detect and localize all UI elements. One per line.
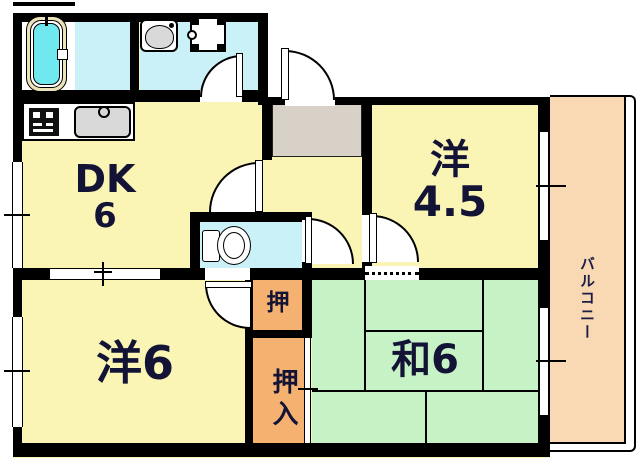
washing-machine-icon [190,17,226,52]
window-tick [536,185,566,187]
western6-opening [205,268,250,280]
entrance-door-leaf [281,48,289,100]
wall-segment [302,280,312,338]
bathtub-icon [26,16,67,92]
sliding-door-tick [94,271,112,273]
closet-fusuma [304,338,311,443]
washroom-door-leaf [236,53,243,97]
kitchen-counter [22,102,135,141]
western6-door-leaf [205,281,252,288]
hall-japanese6-opening-dots [365,272,419,275]
toilet-door-leaf [305,216,312,264]
tatami-line [425,392,427,443]
wall-segment [130,22,139,97]
wall-segment [190,212,312,222]
window-tick [4,214,30,216]
sliding-door-tick [102,262,104,286]
kitchen-sink-icon [74,106,131,138]
window-tick [4,370,30,372]
japanese6-label: 和6 [380,340,470,381]
dk-western6-sliding-door [50,268,160,280]
western45-door-leaf [369,213,377,263]
genkan-entrance [272,103,362,157]
floor-plan: バルコニー [0,0,640,460]
wall-segment [258,13,268,105]
bathtub-handle [57,49,68,60]
tatami-line [364,330,484,332]
tatami-line [482,280,484,392]
toilet-icon [202,226,252,264]
western6-label: 洋6 [70,340,200,387]
wall-segment [13,2,75,6]
western6-window [12,317,23,427]
balcony-label: バルコニー [566,233,594,363]
closet-upper-label: 押 [255,292,301,315]
wall-segment [13,443,550,457]
western45-label: 洋 4.5 [385,140,515,224]
bathtub-faucet [45,17,48,26]
dk-label: DK 6 [40,160,170,233]
closet-lower-label: 押入 [262,356,296,444]
wall-segment [262,97,272,160]
washbasin-icon [140,19,178,52]
fusuma-tick [298,388,318,390]
tatami-line [364,280,366,392]
stove-icon [29,108,59,136]
window-tick [536,360,566,362]
dk-door-leaf [255,160,263,212]
